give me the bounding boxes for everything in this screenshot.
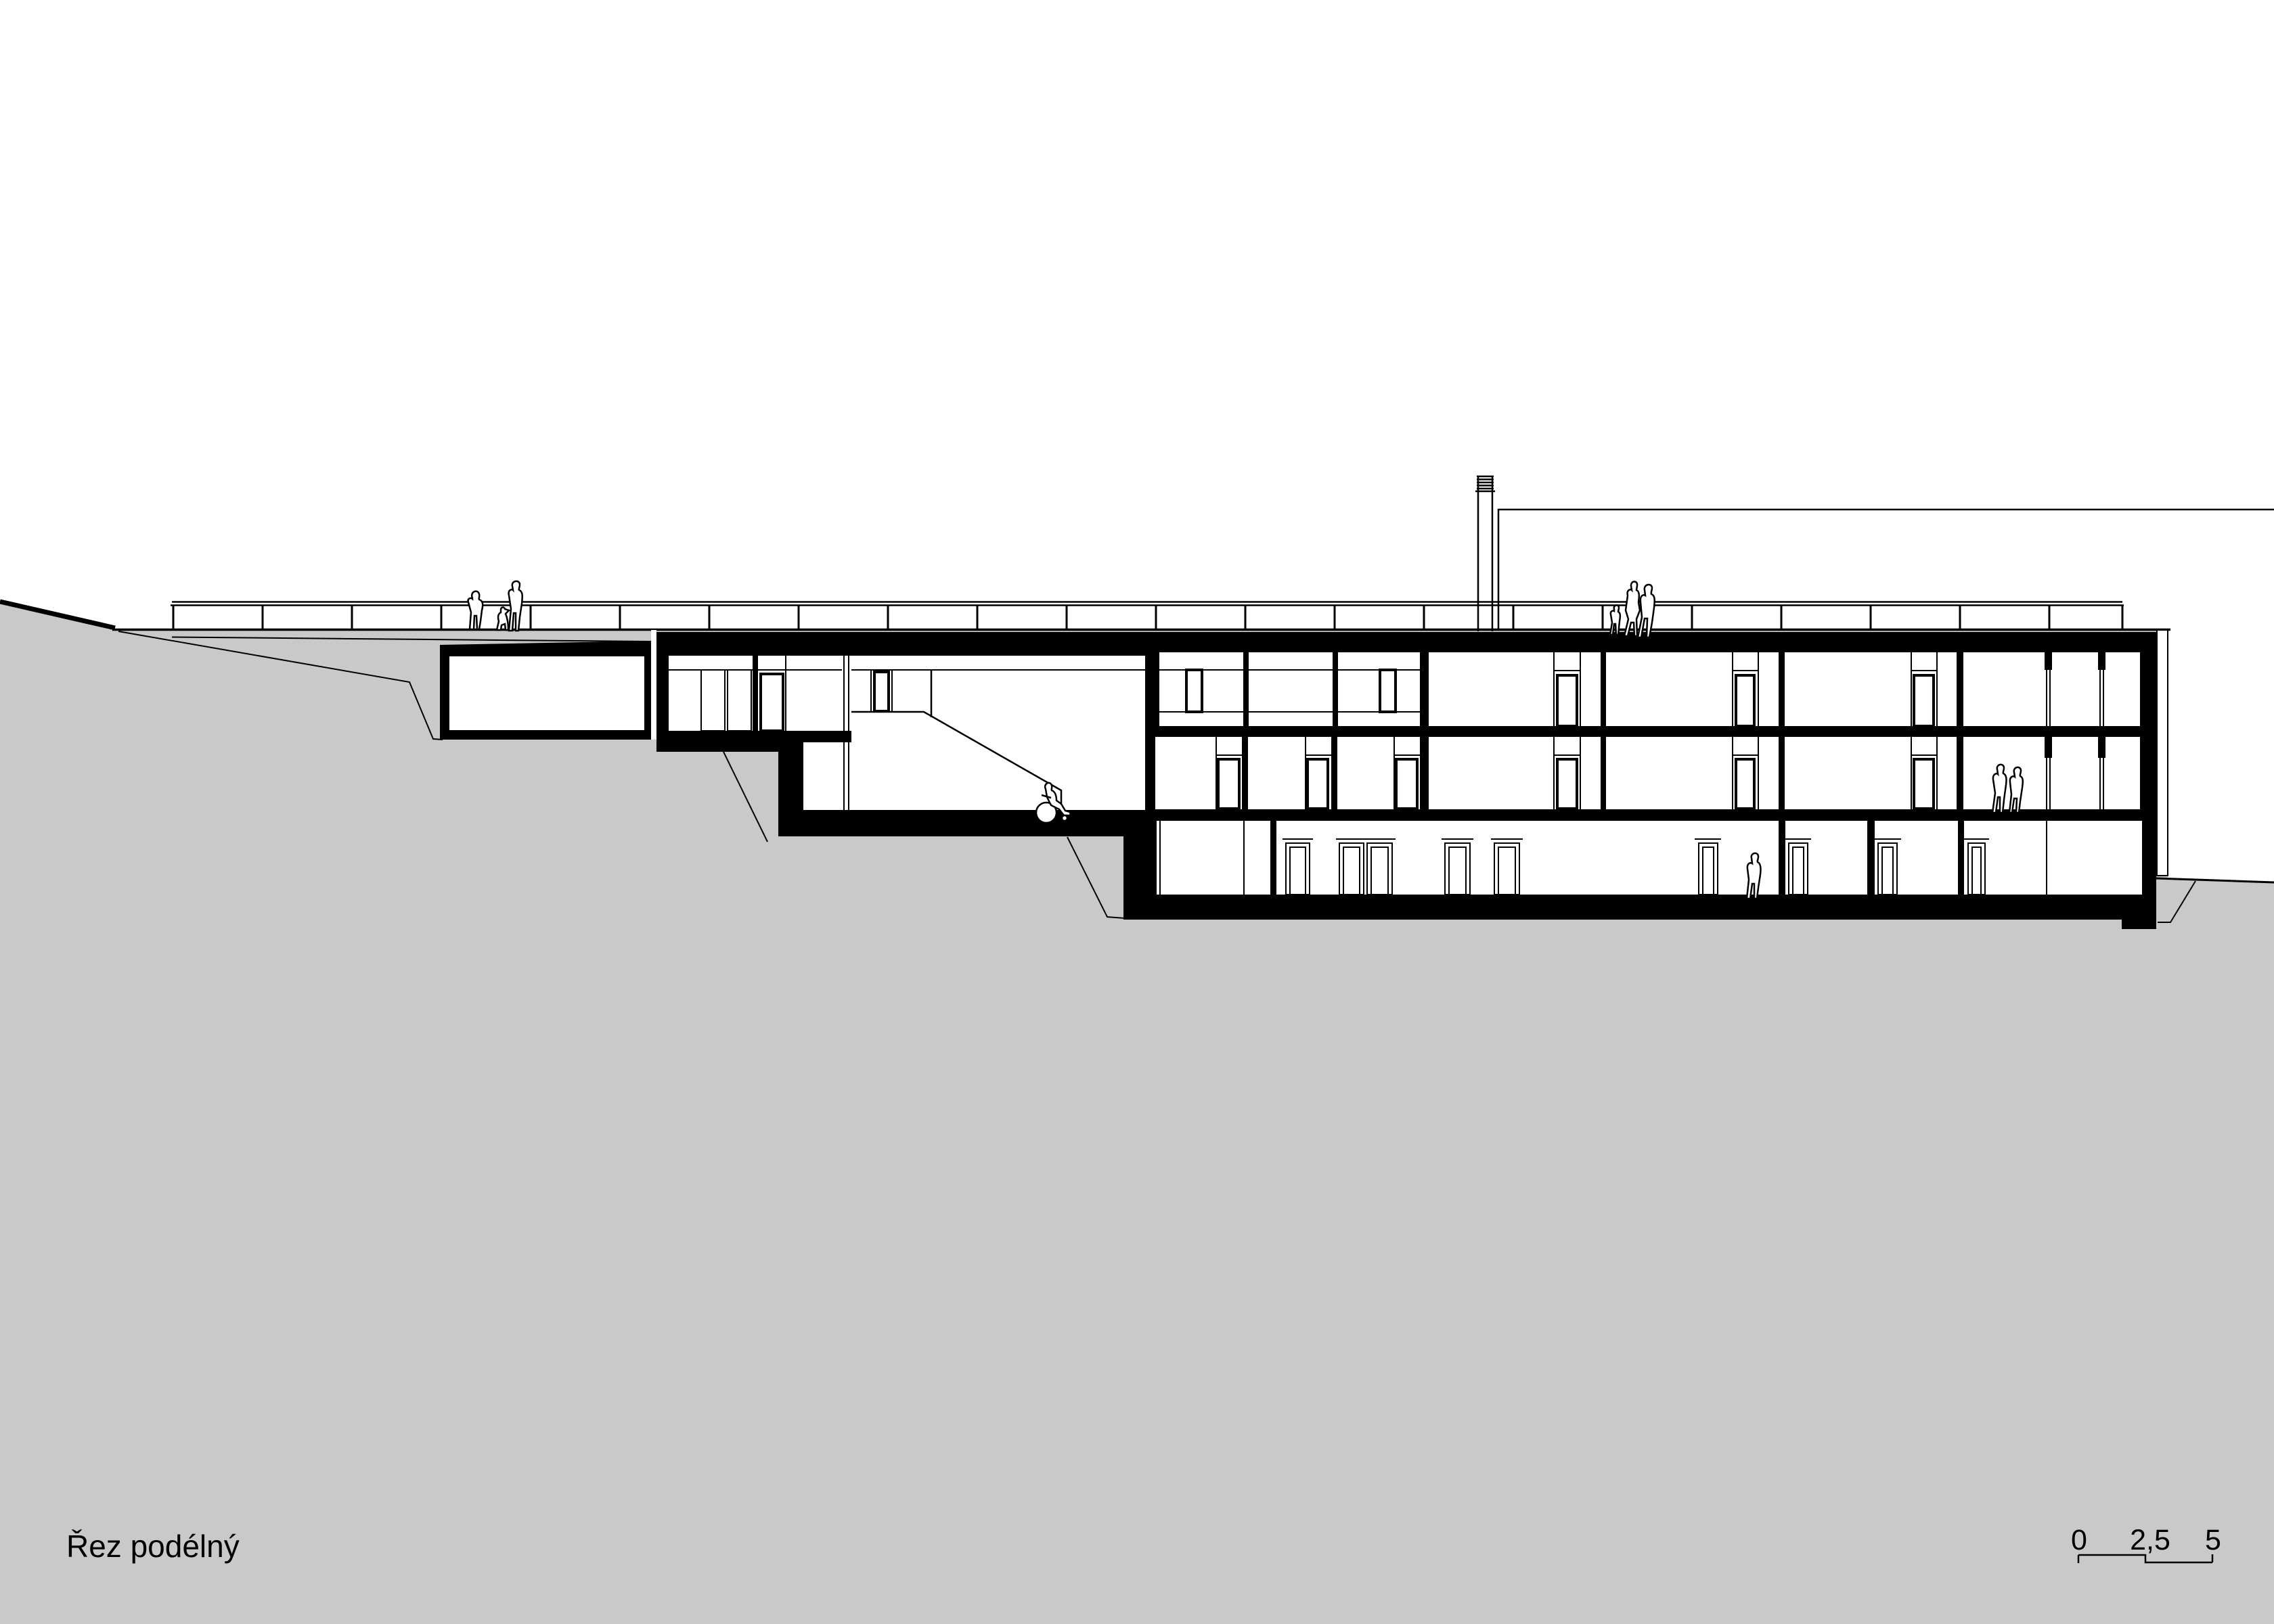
svg-text:5: 5 xyxy=(2205,1524,2221,1556)
svg-text:Řez podélný: Řez podélný xyxy=(66,1529,240,1564)
svg-text:0: 0 xyxy=(2071,1524,2087,1556)
svg-text:2,5: 2,5 xyxy=(2130,1524,2170,1556)
